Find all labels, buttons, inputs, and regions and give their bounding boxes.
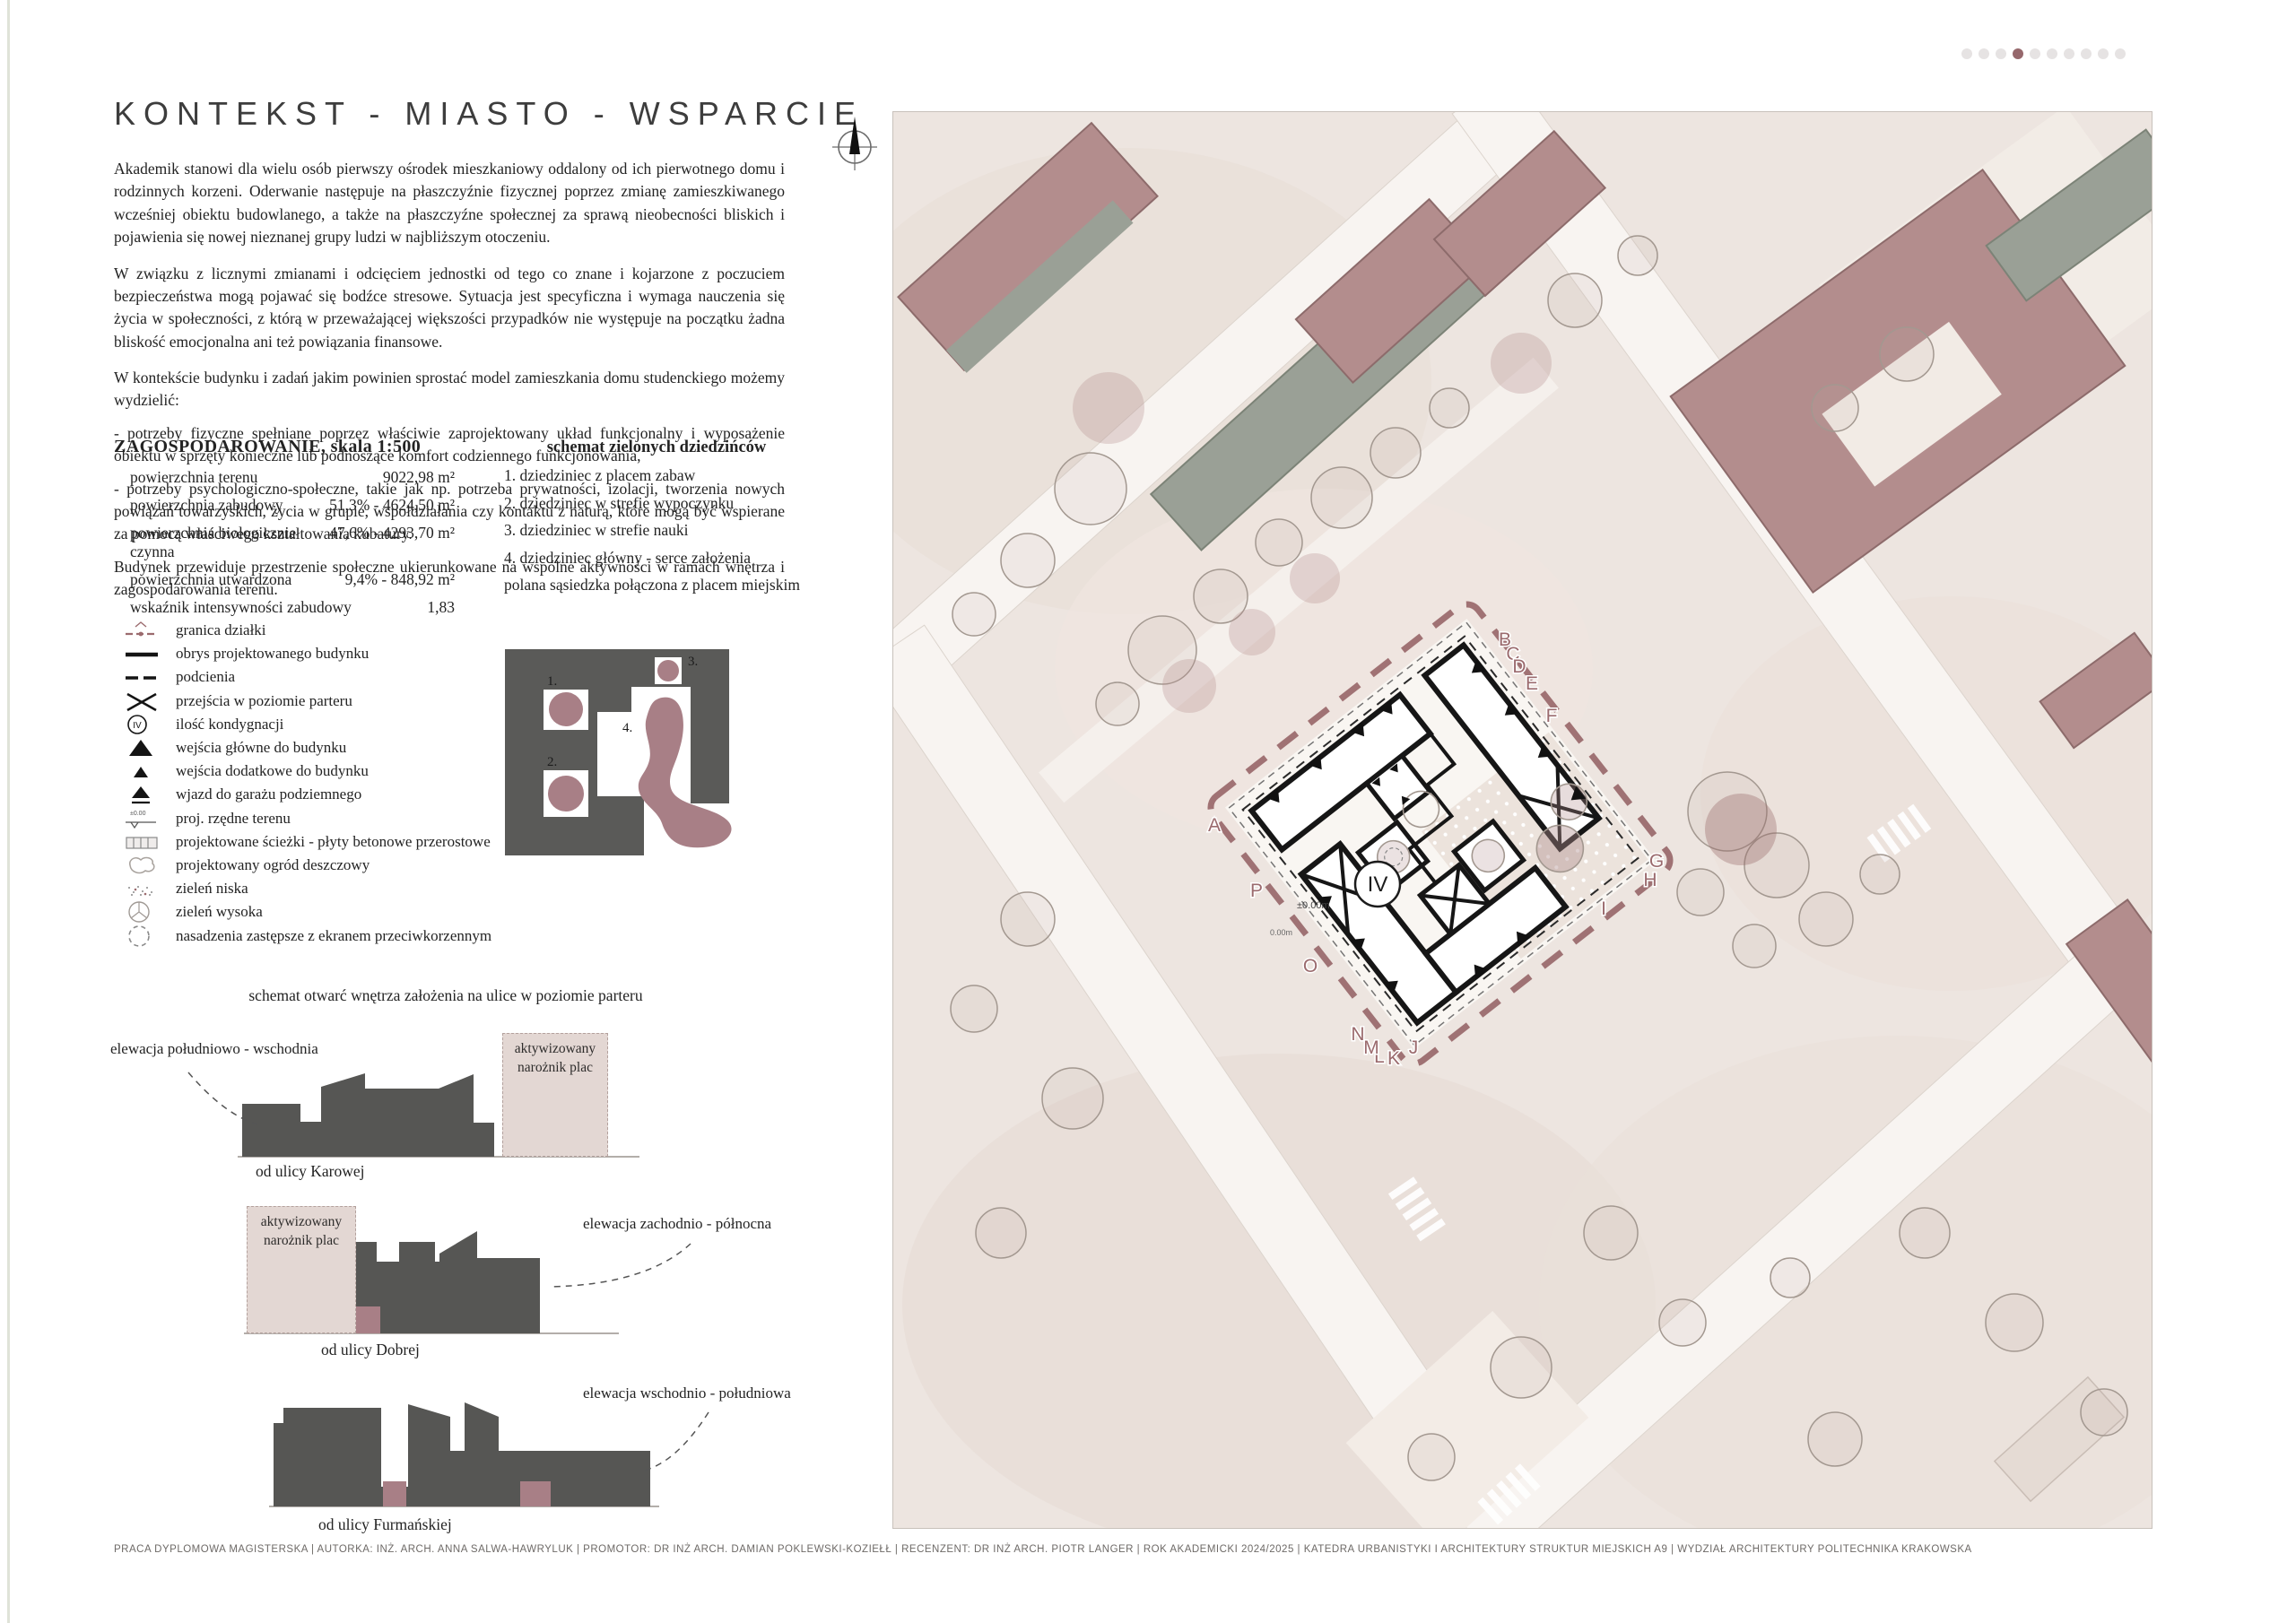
svg-text:G: G: [1649, 851, 1664, 872]
svg-text:D: D: [1512, 656, 1526, 677]
page-dot[interactable]: [2081, 48, 2092, 59]
intro-paragraph: W związku z licznymi zmianami i odcięcie…: [114, 263, 785, 354]
page-dots: [1961, 48, 2126, 59]
rain-garden-icon: [124, 853, 176, 878]
svg-text:J: J: [1409, 1037, 1419, 1058]
side-entrance-icon: [124, 759, 176, 783]
courtyard-label: 4.: [622, 721, 632, 735]
building-outline-icon: [124, 642, 176, 665]
elevation-label: elewacja południowo - wschodnia: [110, 1040, 318, 1058]
courtyard-label: 2.: [547, 755, 557, 769]
svg-text:E: E: [1526, 673, 1538, 694]
list-item: 1. dziedziniec z placem zabaw: [504, 466, 809, 485]
elevation-diagram-karowa: elewacja południowo - wschodnia aktywizo…: [103, 1029, 659, 1186]
intro-paragraph: W kontekście budynku i zadań jakim powin…: [114, 367, 785, 412]
main-entrance-icon: [124, 736, 176, 759]
activated-corner-box: aktywizowany narożnik plac: [502, 1033, 608, 1157]
svg-text:O: O: [1303, 956, 1318, 976]
list-item: 2. dziedziniec w strefie wypoczynku: [504, 494, 809, 513]
plot-boundary-icon: [124, 619, 176, 642]
svg-text:K: K: [1387, 1048, 1400, 1069]
table-row: powierzchnia terenu9022,98 m²: [130, 468, 455, 487]
elevation-diagram-furmanska: elewacja wschodnio - południowa od ulicy…: [224, 1372, 798, 1544]
page-dot[interactable]: [2047, 48, 2057, 59]
garage-entry-icon: [124, 783, 176, 806]
svg-text:H: H: [1643, 870, 1657, 890]
page-dot-active[interactable]: [2013, 48, 2023, 59]
courtyard-label: 3.: [688, 655, 698, 669]
list-item: polana sąsiedzka połączona z placem miej…: [504, 576, 809, 595]
spot-level: 0.00m: [1270, 928, 1292, 937]
green-courtyards-list: schemat zielonych dziedzińców 1. dziedzi…: [504, 438, 809, 603]
page-dot[interactable]: [2064, 48, 2074, 59]
activated-corner-box: aktywizowany narożnik plac: [247, 1206, 356, 1333]
ground-passage-icon: [124, 690, 176, 713]
legend-row: nasadzenia zastępsze z ekranem przeciwko…: [124, 924, 698, 947]
list-item: 4. dziedziniec główny - serce założenia: [504, 549, 809, 568]
green-courtyards-title: schemat zielonych dziedzińców: [504, 438, 809, 457]
north-arrow-icon: [825, 109, 884, 189]
storeys-badge: IV: [1355, 862, 1400, 907]
page-title: KONTEKST - MIASTO - WSPARCIE: [114, 95, 864, 133]
storeys-icon: IV: [124, 712, 176, 737]
land-use-title: ZAGOSPODAROWANIE, skala 1:500: [114, 437, 455, 457]
street-caption: od ulicy Karowej: [256, 1162, 365, 1181]
legend-row: granica działki: [124, 619, 698, 642]
page-dot[interactable]: [1996, 48, 2006, 59]
footer-credits: PRACA DYPLOMOWA MAGISTERSKA | AUTORKA: I…: [114, 1544, 2177, 1555]
page-dot[interactable]: [1979, 48, 1989, 59]
courtyard-scheme-diagram: 1. 2. 3. 4.: [500, 642, 774, 907]
elevation-label: elewacja zachodnio - północna: [583, 1215, 771, 1233]
low-greenery-icon: [124, 877, 176, 900]
street-caption: od ulicy Furmańskiej: [318, 1515, 452, 1534]
svg-text:P: P: [1250, 881, 1263, 901]
svg-text:IV: IV: [133, 721, 142, 731]
street-caption: od ulicy Dobrej: [321, 1341, 420, 1359]
courtyard-label: 1.: [547, 674, 557, 689]
svg-text:I: I: [1601, 898, 1606, 919]
svg-text:M: M: [1363, 1037, 1379, 1058]
table-row: powierzchnia zabudowy51,3% - 4624,50 m²: [130, 496, 455, 515]
elevation-diagram-dobra: elewacja zachodnio - północna aktywizowa…: [224, 1206, 798, 1367]
table-row: wskaźnik intensywności zabudowy1,83: [130, 598, 455, 617]
page-dot[interactable]: [1961, 48, 1972, 59]
replacement-planting-icon: [124, 924, 176, 949]
elevations-heading: schemat otwarć wnętrza założenia na ulic…: [114, 986, 778, 1005]
presentation-board: KONTEKST - MIASTO - WSPARCIE Akademik st…: [0, 0, 2296, 1623]
table-row: powierzchnia utwardzona9,4% - 848,92 m²: [130, 570, 455, 589]
elevation-label: elewacja wschodnio - południowa: [583, 1384, 791, 1402]
table-row: powierzchnia biologicznie czynna47,6% - …: [130, 524, 455, 561]
spot-level-icon: ±0.00: [124, 807, 176, 830]
arcade-icon: [124, 665, 176, 689]
svg-text:IV: IV: [1368, 872, 1388, 897]
page-dot[interactable]: [2098, 48, 2109, 59]
land-use-table: ZAGOSPODAROWANIE, skala 1:500 powierzchn…: [114, 437, 455, 626]
list-item: 3. dziedziniec w strefie nauki: [504, 521, 809, 540]
site-plan-map: A B C D E F G H I J K L M N O P IV: [892, 111, 2152, 1529]
page-dot[interactable]: [2030, 48, 2040, 59]
svg-text:±0.00: ±0.00: [130, 811, 146, 817]
page-dot[interactable]: [2115, 48, 2126, 59]
svg-text:N: N: [1351, 1024, 1364, 1045]
spot-level: ±0.00m: [1297, 900, 1330, 911]
paths-icon: [124, 830, 176, 854]
high-greenery-icon: [124, 899, 176, 924]
page-edge-line: [7, 0, 10, 1623]
svg-text:F: F: [1546, 706, 1558, 726]
svg-text:A: A: [1208, 815, 1221, 836]
intro-paragraph: Akademik stanowi dla wielu osób pierwszy…: [114, 158, 785, 249]
